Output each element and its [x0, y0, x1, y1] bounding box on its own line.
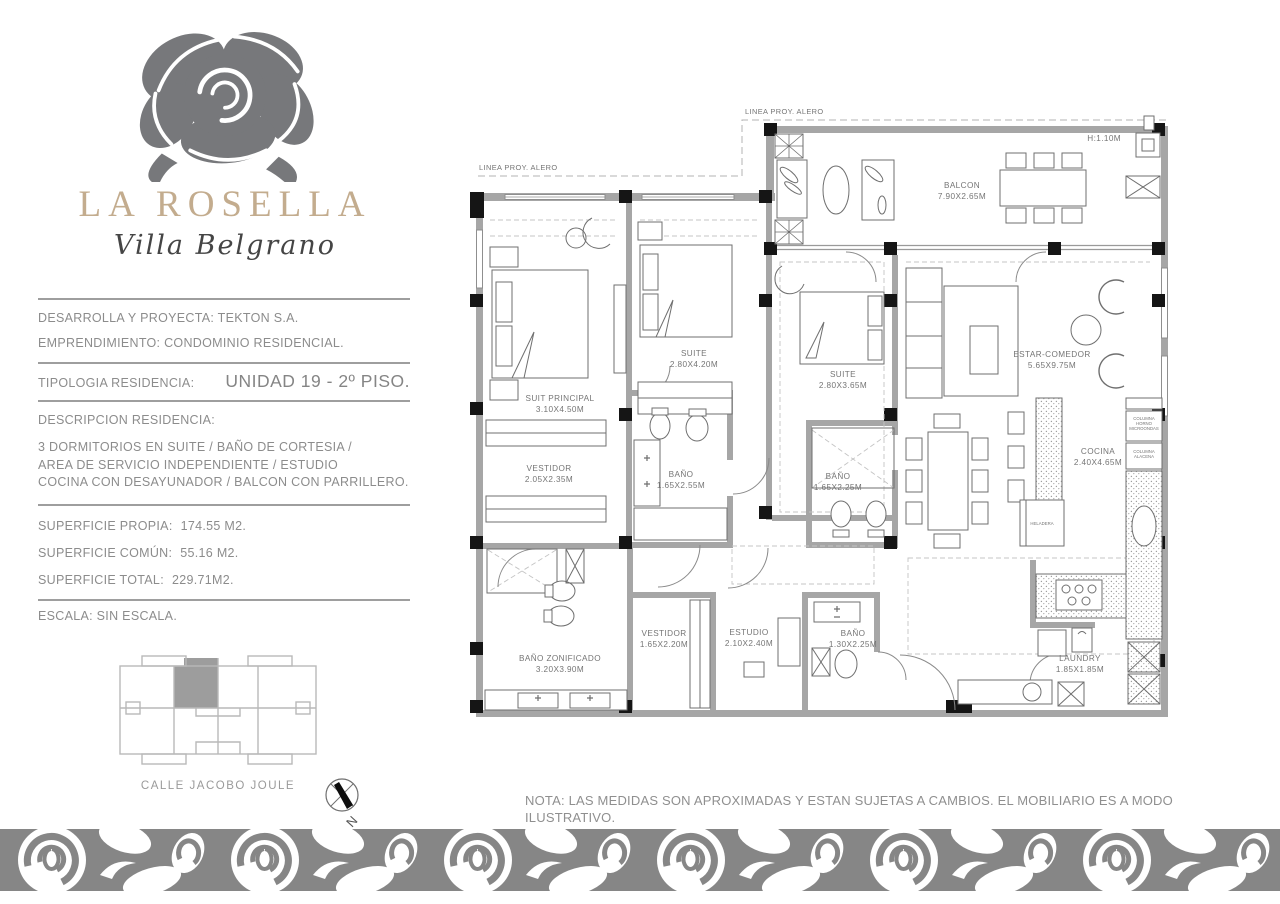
description-label: DESCRIPCION RESIDENCIA: [38, 413, 410, 427]
description-line: AREA DE SERVICIO INDEPENDIENTE / ESTUDIO [38, 457, 410, 475]
room-label-bano-225: BAÑO [826, 471, 851, 481]
floorplan-sheet: LA ROSELLA Villa Belgrano DESARROLLA Y P… [0, 0, 1280, 904]
furniture [485, 116, 1162, 710]
room-label-estar-comedor: ESTAR-COMEDOR [1013, 350, 1090, 359]
svg-text:1.85X1.85M: 1.85X1.85M [1056, 665, 1104, 674]
developer-line: DESARROLLA Y PROYECTA: TEKTON S.A. [38, 311, 410, 325]
surface-own: SUPERFICIE PROPIA:174.55 M2. [38, 519, 410, 533]
room-label-estudio: ESTUDIO [729, 628, 768, 637]
divider [38, 298, 410, 300]
fridge-label: HELADERA [1030, 521, 1053, 526]
svg-text:1.30X2.25M: 1.30X2.25M [829, 640, 877, 649]
room-label-suite-1: SUITE [681, 349, 707, 358]
room-label-bano-255: BAÑO [669, 469, 694, 479]
description-block: 3 DORMITORIOS EN SUITE / BAÑO DE CORTESI… [38, 439, 410, 492]
typology-label: TIPOLOGIA RESIDENCIA: [38, 376, 194, 390]
surface-total: SUPERFICIE TOTAL:229.71M2. [38, 573, 410, 587]
project-line: EMPRENDIMIENTO: CONDOMINIO RESIDENCIAL. [38, 336, 410, 350]
description-line: 3 DORMITORIOS EN SUITE / BAÑO DE CORTESI… [38, 439, 410, 457]
svg-text:3.10X4.50M: 3.10X4.50M [536, 405, 584, 414]
room-label-vestidor-1: VESTIDOR [526, 464, 571, 473]
eave-label-left: LINEA PROY. ALERO [479, 163, 558, 172]
room-label-suit-principal: SUIT PRINCIPAL [526, 394, 595, 403]
eave-label-top: LINEA PROY. ALERO [745, 107, 824, 116]
divider [38, 400, 410, 402]
divider [38, 362, 410, 364]
svg-text:7.90X2.65M: 7.90X2.65M [938, 192, 986, 201]
svg-text:ALACENA: ALACENA [1134, 454, 1154, 459]
svg-text:5.65X9.75M: 5.65X9.75M [1028, 361, 1076, 370]
room-label-bano-zonificado: BAÑO ZONIFICADO [519, 653, 601, 663]
brand-subtitle: Villa Belgrano [0, 230, 450, 261]
svg-text:2.10X2.40M: 2.10X2.40M [725, 639, 773, 648]
room-label-balcon: BALCON [944, 181, 980, 190]
svg-text:1.65X2.55M: 1.65X2.55M [657, 481, 705, 490]
floor-plan-drawing: LINEA PROY. ALERO LINEA PROY. ALERO [470, 105, 1180, 745]
divider [38, 504, 410, 506]
compass-north-label: N [343, 813, 360, 830]
typology-line: TIPOLOGIA RESIDENCIA: UNIDAD 19 - 2º PIS… [38, 371, 410, 392]
scale-line: ESCALA: SIN ESCALA. [38, 609, 410, 623]
typology-value: UNIDAD 19 - 2º PISO. [225, 371, 410, 392]
svg-text:1.65X2.20M: 1.65X2.20M [640, 640, 688, 649]
room-label-bano-130: BAÑO [841, 628, 866, 638]
brand-title: LA ROSELLA [0, 183, 450, 226]
svg-text:MICROONDAS: MICROONDAS [1129, 426, 1159, 431]
rose-pattern-band [0, 829, 1280, 891]
note-line-1: NOTA: LAS MEDIDAS SON APROXIMADAS Y ESTA… [525, 792, 1265, 826]
svg-text:2.80X4.20M: 2.80X4.20M [670, 360, 718, 369]
svg-text:2.40X4.65M: 2.40X4.65M [1074, 458, 1122, 467]
building-key-plan [108, 646, 338, 781]
room-label-laundry: LAUNDRY [1059, 654, 1101, 663]
divider [38, 599, 410, 601]
svg-text:2.05X2.35M: 2.05X2.35M [525, 475, 573, 484]
svg-text:2.80X3.65M: 2.80X3.65M [819, 381, 867, 390]
key-plan-drawing [108, 646, 328, 776]
description-line: COCINA CON DESAYUNADOR / BALCON CON PARR… [38, 474, 410, 492]
room-label-vestidor-2: VESTIDOR [641, 629, 686, 638]
compass-needle [334, 782, 353, 809]
brand-block: LA ROSELLA Villa Belgrano [0, 24, 450, 261]
street-label: CALLE JACOBO JOULE [108, 780, 328, 792]
rose-logo-icon [111, 24, 339, 182]
room-label-suite-2: SUITE [830, 370, 856, 379]
svg-text:1.65X2.25M: 1.65X2.25M [814, 483, 862, 492]
surface-common: SUPERFICIE COMÚN:55.16 M2. [38, 546, 410, 560]
svg-text:3.20X3.90M: 3.20X3.90M [536, 665, 584, 674]
room-label-cocina: COCINA [1081, 447, 1115, 456]
railing-height-note: H:1.10M [1087, 134, 1121, 143]
info-panel: DESARROLLA Y PROYECTA: TEKTON S.A. EMPRE… [38, 298, 410, 623]
